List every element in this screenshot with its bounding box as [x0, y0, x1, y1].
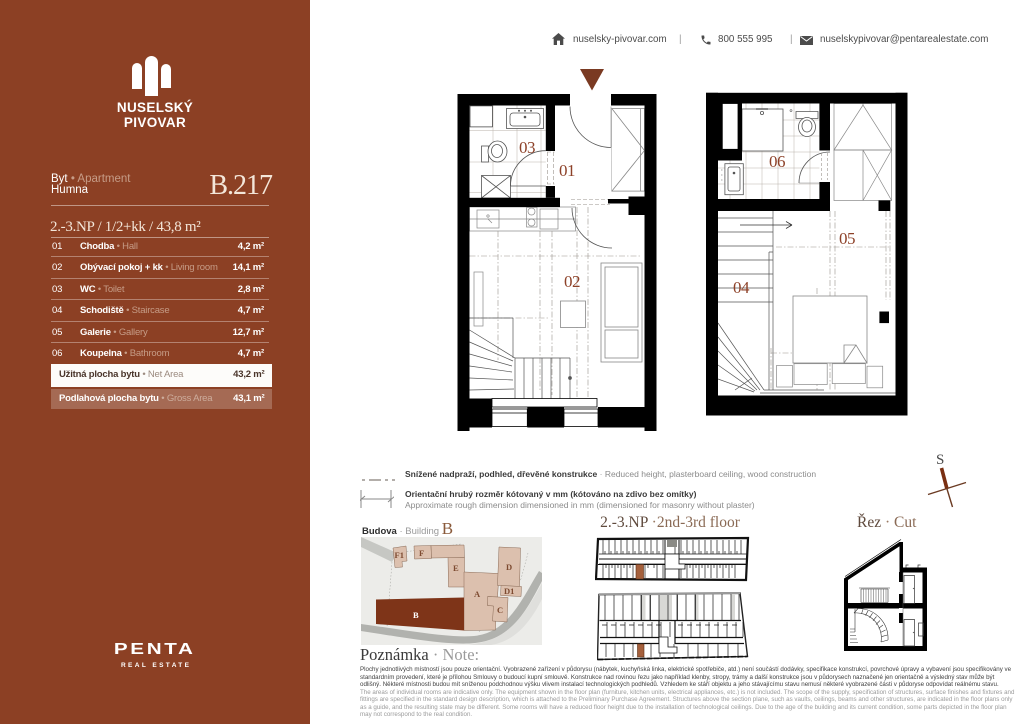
svg-text:C: C — [497, 605, 503, 615]
svg-text:A: A — [474, 589, 481, 599]
svg-text:06: 06 — [769, 152, 785, 171]
svg-text:01: 01 — [559, 161, 575, 180]
svg-text:D: D — [506, 562, 512, 572]
svg-text:S: S — [936, 452, 944, 468]
svg-text:F1: F1 — [395, 550, 404, 560]
svg-text:F: F — [419, 548, 424, 558]
svg-text:B: B — [413, 610, 419, 620]
svg-text:E: E — [453, 563, 459, 573]
svg-text:05: 05 — [839, 229, 855, 248]
svg-text:04: 04 — [733, 278, 750, 297]
svg-text:03: 03 — [519, 138, 535, 157]
svg-text:02: 02 — [564, 272, 580, 291]
svg-text:D1: D1 — [504, 586, 514, 596]
